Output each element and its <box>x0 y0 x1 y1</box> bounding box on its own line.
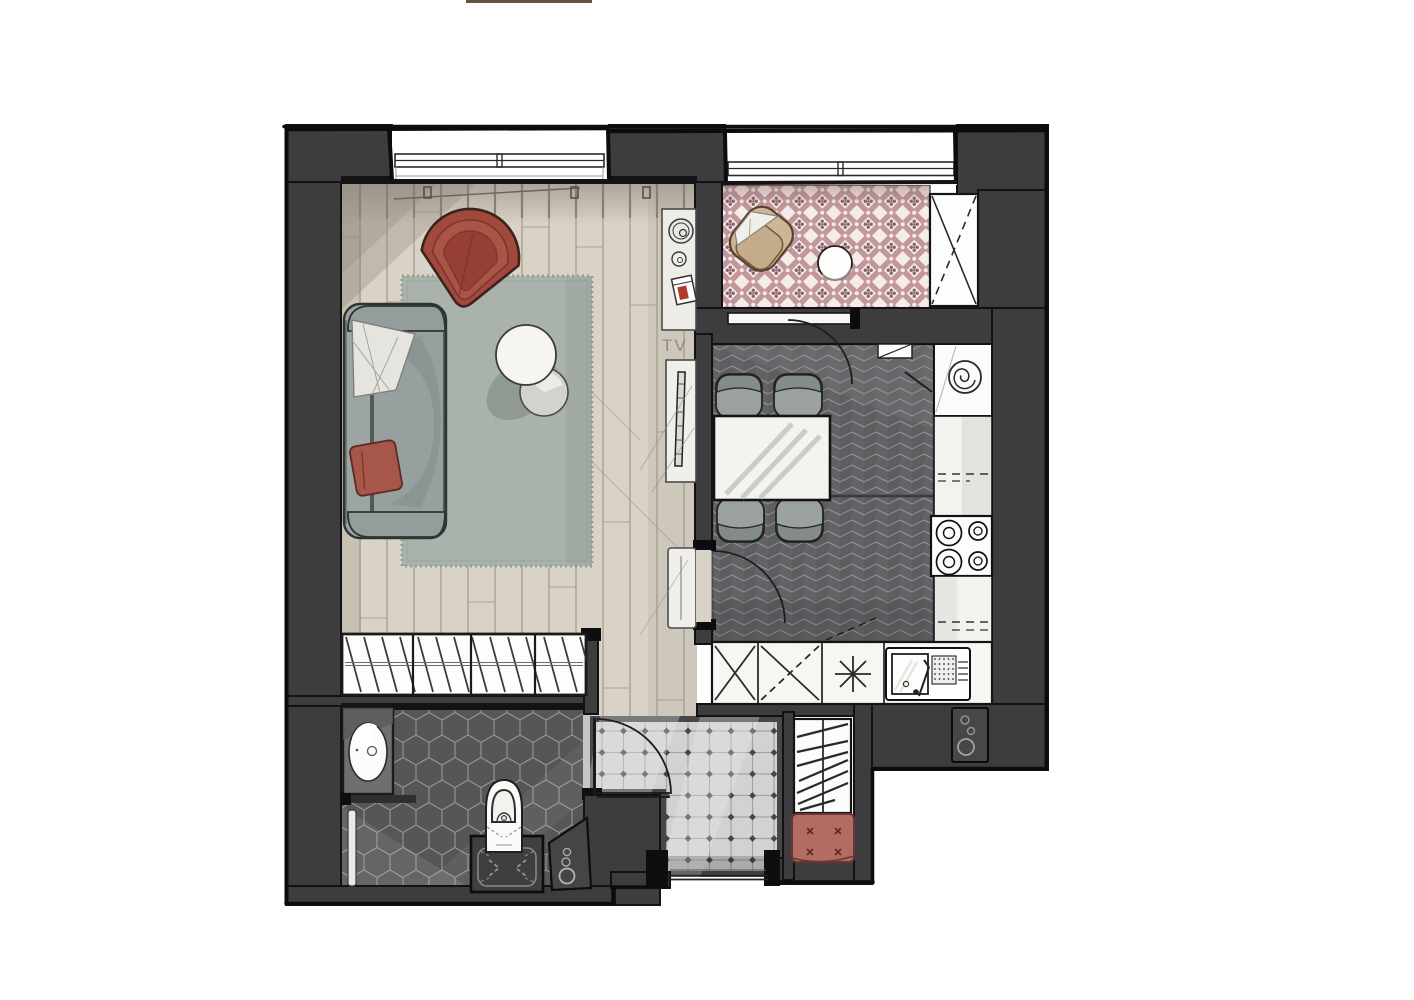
svg-text:TV: TV <box>662 336 688 355</box>
